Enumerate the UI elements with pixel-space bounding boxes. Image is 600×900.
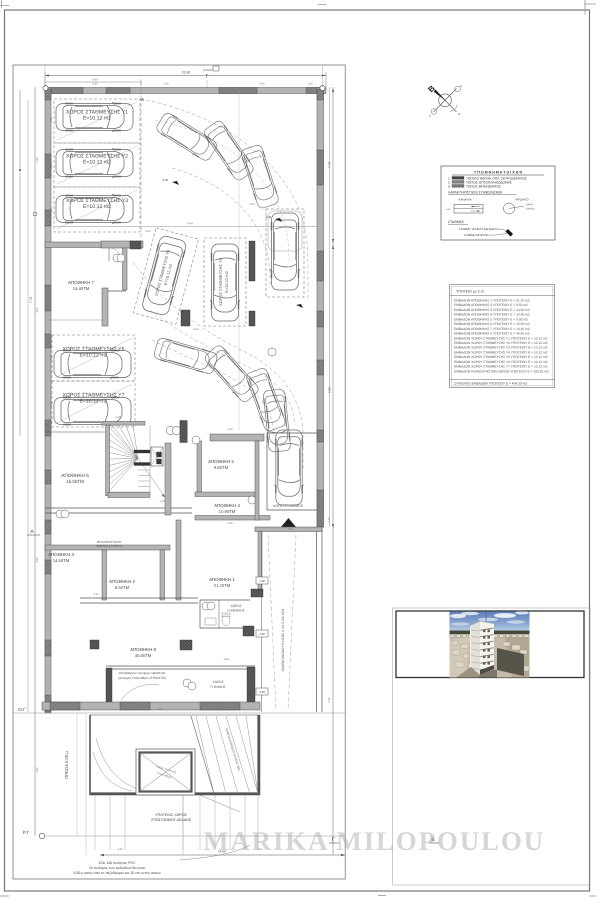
svg-text:2.98: 2.98 — [259, 632, 265, 636]
svg-text:ΕΜΒΑΔΟΝ ΑΠΟΘΗΚΗΣ 6 ΥΠΟΓΕΙΟΥ Ε: ΕΜΒΑΔΟΝ ΑΠΟΘΗΚΗΣ 6 ΥΠΟΓΕΙΟΥ Ε = 15.50 m2 — [454, 322, 530, 326]
svg-text:ΣΤΑΘΜΗ ΤΕΛΙΚΟΥ ΔΑΠΕΔΟΥ: ΣΤΑΘΜΗ ΤΕΛΙΚΟΥ ΔΑΠΕΔΟΥ — [459, 227, 497, 231]
svg-text:1.20: 1.20 — [159, 500, 165, 503]
svg-text:4.44: 4.44 — [187, 222, 193, 226]
svg-text:4.40: 4.40 — [117, 848, 123, 851]
svg-text:1.90: 1.90 — [307, 83, 313, 86]
svg-text:15.50ΤΜ: 15.50ΤΜ — [66, 479, 84, 484]
svg-text:Οι σωληνες των καλωδιων θα ειν: Οι σωληνες των καλωδιων θα ειναι — [89, 866, 145, 870]
svg-text:ΠΡΑΣΙΑ 6.00 μ: ΠΡΑΣΙΑ 6.00 μ — [64, 751, 69, 779]
svg-text:2.20: 2.20 — [193, 328, 199, 331]
svg-text:ΑΠΟΘΗΚΗ 8: ΑΠΟΘΗΚΗ 8 — [130, 647, 156, 652]
svg-text:ΕΜΒΑΔΟΝ ΧΩΡΟΥ ΣΤΑΘΜΕΥΣΗΣ Υ4 ΥΠ: ΕΜΒΑΔΟΝ ΧΩΡΟΥ ΣΤΑΘΜΕΥΣΗΣ Υ4 ΥΠΟΓΕΙΟΥ Ε =… — [454, 350, 548, 354]
svg-text:2.60: 2.60 — [163, 83, 169, 86]
svg-text:4.40: 4.40 — [50, 163, 53, 169]
svg-text:ΚΛΕΙΣΤΟ GARAGE: ΚΛΕΙΣΤΟ GARAGE — [273, 504, 304, 508]
svg-text:ΕΜΒΑΔΟΝ ΧΩΡΟΥ ΣΤΑΘΜΕΥΣΗΣ Υ2 ΥΠ: ΕΜΒΑΔΟΝ ΧΩΡΟΥ ΣΤΑΘΜΕΥΣΗΣ Υ2 ΥΠΟΓΕΙΟΥ Ε =… — [454, 341, 548, 345]
svg-text:ΕΜΒΑΔΟΝ ΧΩΡΟΥ ΣΤΑΘΜΕΥΣΗΣ Υ5 ΥΠ: ΕΜΒΑΔΟΝ ΧΩΡΟΥ ΣΤΑΘΜΕΥΣΗΣ Υ5 ΥΠΟΓΕΙΟΥ Ε =… — [454, 355, 548, 359]
svg-text:1.10: 1.10 — [328, 517, 331, 523]
svg-text:12Φ 140 σωληνες PVC: 12Φ 140 σωληνες PVC — [98, 861, 136, 865]
svg-text:Ε=10.12 m2: Ε=10.12 m2 — [83, 204, 111, 210]
svg-text:ΡΑΜΠΑ ΑΝΟΔΟΥ ΚΛΙΣΗΣ 2.4/1.5.30: ΡΑΜΠΑ ΑΝΟΔΟΥ ΚΛΙΣΗΣ 2.4/1.5.30=16% — [281, 609, 285, 672]
svg-text:ΕΜΒΑΔΟΝ ΑΠΟΘΗΚΗΣ 5 ΥΠΟΓΕΙΟΥ Ε: ΕΜΒΑΔΟΝ ΑΠΟΘΗΚΗΣ 5 ΥΠΟΓΕΙΟΥ Ε = 9.80 m2 — [454, 317, 528, 321]
svg-text:Η ΒΙΕΝΝΗΣ: Η ΒΙΕΝΝΗΣ — [227, 609, 244, 613]
svg-text:ΑΠΟΘΗΚΗ 2: ΑΠΟΘΗΚΗ 2 — [109, 579, 135, 584]
svg-text:4.90: 4.90 — [36, 557, 39, 563]
svg-text:2.30: 2.30 — [36, 157, 39, 163]
svg-text:Α: Α — [141, 97, 144, 102]
svg-text:5.00: 5.00 — [287, 528, 293, 531]
svg-text:ΕΜΒΑΔΟΝ ΑΠΟΘΗΚΗΣ 8 ΥΠΟΓΕΙΟΥ Ε: ΕΜΒΑΔΟΝ ΑΠΟΘΗΚΗΣ 8 ΥΠΟΓΕΙΟΥ Ε = 45.80 m2 — [454, 332, 530, 336]
svg-text:1.98: 1.98 — [259, 579, 265, 583]
svg-text:ΑΝΕΛΚΥΣΤΗΡΑ Θ: ΑΝΕΛΚΥΣΤΗΡΑ Θ — [96, 544, 122, 548]
svg-text:9.80ΤΜ: 9.80ΤΜ — [214, 465, 229, 470]
svg-text:10.90ΤΜ: 10.90ΤΜ — [219, 509, 236, 514]
svg-text:Γ: Γ — [206, 74, 209, 80]
svg-text:1.98: 1.98 — [223, 658, 229, 661]
svg-text:ΥΠΟΣΤΑΘΜΟΥ ΔΕΔΔΗΕ: ΥΠΟΣΤΑΘΜΟΥ ΔΕΔΔΗΕ — [151, 818, 192, 822]
svg-text:(ανοιγμα Υποσταθμου 0.80x4.50): (ανοιγμα Υποσταθμου 0.80x4.50) — [118, 676, 165, 680]
svg-text:Υ Π Ο Μ Ν Η Μ Α Τ Ο Ι Χ Ω Ν: Υ Π Ο Μ Ν Η Μ Α Τ Ο Ι Χ Ω Ν — [474, 171, 523, 175]
svg-text:ΦΡΕΑΤΙΟ: ΦΡΕΑΤΙΟ — [515, 198, 529, 202]
svg-text:4.40: 4.40 — [50, 207, 53, 213]
svg-text:ΥΠΟΓΕΙΟΣ ΧΩΡΟΣ: ΥΠΟΓΕΙΟΣ ΧΩΡΟΣ — [155, 813, 187, 817]
svg-text:3.30: 3.30 — [227, 428, 233, 431]
svg-text:45.80ΤΜ: 45.80ΤΜ — [135, 653, 152, 658]
svg-text:ΕΜΒΑΔΟΝ ΧΩΡΟΥ ΣΤΑΘΜΕΥΣΗΣ Υ3 ΥΠ: ΕΜΒΑΔΟΝ ΧΩΡΟΥ ΣΤΑΘΜΕΥΣΗΣ Υ3 ΥΠΟΓΕΙΟΥ Ε =… — [454, 346, 548, 350]
svg-text:4.40: 4.40 — [50, 355, 53, 361]
svg-text:8.50ΤΜ: 8.50ΤΜ — [115, 585, 130, 590]
svg-text:21.20ΤΜ: 21.20ΤΜ — [214, 583, 231, 588]
svg-text:Ε=10.12 m2: Ε=10.12 m2 — [83, 116, 111, 122]
svg-text:Α: Α — [460, 84, 462, 88]
svg-text:ΕΜΒΑΔΟΝ ΑΠΟΘΗΚΗΣ 4 ΥΠΟΓΕΙΟΥ Ε: ΕΜΒΑΔΟΝ ΑΠΟΘΗΚΗΣ 4 ΥΠΟΓΕΙΟΥ Ε = 10.90 m2 — [454, 313, 530, 317]
svg-text:MARIKA MILOPOULOU: MARIKA MILOPOULOU — [203, 826, 545, 856]
svg-text:ΤΟΙΧΟΣ ΜΠΑΖΩΜΑΤΟΣ: ΤΟΙΧΟΣ ΜΠΑΖΩΜΑΤΟΣ — [466, 185, 501, 189]
svg-text:ΑΠΟΘΗΚΗ 1: ΑΠΟΘΗΚΗ 1 — [209, 577, 235, 582]
svg-text:ΧΩΡΟΣ ΣΤΑΘΜΕΥΣΗΣ Υ5: ΧΩΡΟΣ ΣΤΑΘΜΕΥΣΗΣ Υ5 — [218, 257, 223, 306]
svg-text:ΥΠΟΓΕΙΟ με Σ.Ο.: ΥΠΟΓΕΙΟ με Σ.Ο. — [456, 290, 485, 294]
svg-text:ΣΥΝΟΛΙΚΟ ΕΜΒΑΔΟΝ ΥΠΟΓΕΙΟΥ Ε =: ΣΥΝΟΛΙΚΟ ΕΜΒΑΔΟΝ ΥΠΟΓΕΙΟΥ Ε = 404.35 m2 — [454, 382, 527, 386]
svg-text:Ε=10.12 m2: Ε=10.12 m2 — [83, 160, 111, 166]
svg-text:ΑΠΟΘΗΚΗ 3: ΑΠΟΘΗΚΗ 3 — [48, 552, 74, 557]
svg-text:7.76: 7.76 — [29, 297, 33, 303]
svg-text:5.45: 5.45 — [328, 697, 331, 703]
svg-text:3.: 3. — [448, 185, 451, 189]
svg-text:5.90: 5.90 — [259, 83, 265, 86]
svg-text:ΕΜΒΑΔΟΝ ΧΩΡΟΥ ΣΤΑΘΜΕΥΣΗΣ Υ7 ΥΠ: ΕΜΒΑΔΟΝ ΧΩΡΟΥ ΣΤΑΘΜΕΥΣΗΣ Υ7 ΥΠΟΓΕΙΟΥ Ε =… — [454, 365, 548, 369]
svg-text:4.90: 4.90 — [92, 79, 98, 82]
svg-text:14.50ΤΜ: 14.50ΤΜ — [53, 558, 70, 563]
svg-text:-0.40: -0.40 — [162, 178, 169, 182]
svg-text:4.40: 4.40 — [50, 401, 53, 407]
svg-text:ΣΤΑΘΜΗ ΜΠΕΤΟΝ: ΣΤΑΘΜΗ ΜΠΕΤΟΝ — [464, 233, 488, 237]
svg-text:3.95: 3.95 — [36, 767, 39, 773]
svg-text:14.40ΤΜ: 14.40ΤΜ — [73, 286, 90, 291]
svg-text:ΚΑΝΑΛΙΑ: ΚΑΝΑΛΙΑ — [458, 198, 471, 202]
svg-text:ΕΜΒΑΔΟΝ ΑΠΟΘΗΚΗΣ 3 ΥΠΟΓΕΙΟΥ Ε: ΕΜΒΑΔΟΝ ΑΠΟΘΗΚΗΣ 3 ΥΠΟΓΕΙΟΥ Ε = 14.50 m2 — [454, 308, 530, 312]
svg-text:Π ΙΕΝΝΗΣ: Π ΙΕΝΝΗΣ — [210, 685, 225, 689]
svg-text:ΕΜΒΑΔΟΝ ΧΩΡΟΥ ΣΤΑΘΜΕΥΣΗΣ Υ6 ΥΠ: ΕΜΒΑΔΟΝ ΧΩΡΟΥ ΣΤΑΘΜΕΥΣΗΣ Υ6 ΥΠΟΓΕΙΟΥ Ε =… — [454, 360, 548, 364]
svg-text:3.15: 3.15 — [93, 593, 99, 596]
svg-text:ΧΑΡΑΚΤΗΡΙΣΤΙΚΟΙ ΣΥΜΒΟΛΙΣΜΟΙ: ΧΑΡΑΚΤΗΡΙΣΤΙΚΟΙ ΣΥΜΒΟΛΙΣΜΟΙ — [448, 191, 502, 195]
svg-text:ΧΩΡΟΣ: ΧΩΡΟΣ — [212, 680, 223, 684]
svg-text:καθοδος: καθοδος — [526, 208, 536, 211]
svg-text:2.48: 2.48 — [115, 416, 121, 419]
svg-text:3.98: 3.98 — [259, 690, 265, 694]
svg-text:31.80: 31.80 — [182, 71, 191, 75]
svg-text:Ν: Ν — [458, 112, 460, 116]
svg-text:ΧΩΡΟΣ: ΧΩΡΟΣ — [230, 604, 241, 608]
svg-text:5.00 μ κατω απο το πεζοδρομιο: 5.00 μ κατω απο το πεζοδρομιο και 10 cm … — [73, 871, 160, 875]
svg-text:-0.40: -0.40 — [265, 215, 272, 219]
svg-text:Ρ.Γ: Ρ.Γ — [23, 830, 30, 835]
svg-text:ΣΤΑΘΜΕΣ: ΣΤΑΘΜΕΣ — [448, 220, 464, 224]
svg-text:ΑΠΟΘΗΚΗ 7: ΑΠΟΘΗΚΗ 7 — [68, 280, 94, 285]
svg-text:4.40: 4.40 — [92, 83, 98, 86]
svg-text:2.20: 2.20 — [145, 230, 151, 233]
svg-text:ΕΜΒΑΔΟΝ ΑΠΟΘΗΚΗΣ 2 ΥΠΟΓΕΙΟΥ Ε: ΕΜΒΑΔΟΝ ΑΠΟΘΗΚΗΣ 2 ΥΠΟΓΕΙΟΥ Ε = 8.50 m2 — [454, 303, 528, 307]
svg-text:3.05: 3.05 — [36, 307, 39, 313]
svg-text:ΑΠΟΘΗΚΗ 4: ΑΠΟΘΗΚΗ 4 — [214, 503, 240, 508]
svg-text:ΕΜΒΑΔΟΝ ΧΩΡΟΥ ΣΤΑΘΜΕΥΣΗΣ Υ1 ΥΠ: ΕΜΒΑΔΟΝ ΧΩΡΟΥ ΣΤΑΘΜΕΥΣΗΣ Υ1 ΥΠΟΓΕΙΟΥ Ε =… — [454, 336, 548, 340]
svg-text:ΑΠΟΘΗΚΗ 6: ΑΠΟΘΗΚΗ 6 — [61, 473, 89, 478]
svg-text:καν.: καν. — [447, 208, 452, 211]
svg-text:ΑΠΟΘΗΚΗ 5: ΑΠΟΘΗΚΗ 5 — [208, 459, 234, 464]
svg-text:ΕΜΒΑΔΟΝ ΑΠΟΘΗΚΗΣ 7 ΥΠΟΓΕΙΟΥ Ε: ΕΜΒΑΔΟΝ ΑΠΟΘΗΚΗΣ 7 ΥΠΟΓΕΙΟΥ Ε = 14.40 m2 — [454, 327, 530, 331]
svg-text:2.96: 2.96 — [227, 522, 233, 525]
svg-text:4.40: 4.40 — [50, 117, 53, 123]
svg-text:2.50: 2.50 — [249, 203, 255, 206]
svg-text:Δ: Δ — [429, 114, 431, 118]
svg-text:Ε=10.12 m2: Ε=10.12 m2 — [224, 270, 229, 292]
svg-text:7.00: 7.00 — [157, 708, 163, 711]
svg-text:σχαρα: σχαρα — [526, 203, 533, 206]
svg-text:ΕΜΒΑΔΟΝ ΚΟΙΝΟΧΡΗΣΤΩΝ ΧΩΡΩΝ ΥΠΟ: ΕΜΒΑΔΟΝ ΚΟΙΝΟΧΡΗΣΤΩΝ ΧΩΡΩΝ ΥΠΟΓΕΙΟΥ Ε = … — [454, 369, 549, 373]
svg-text:κατεβασμενο ανυψωμ παραθυρο: κατεβασμενο ανυψωμ παραθυρο — [119, 671, 166, 675]
svg-text:ΕΜΒΑΔΟΝ ΑΠΟΘΗΚΗΣ 1 ΥΠΟΓΕΙΟΥ Ε: ΕΜΒΑΔΟΝ ΑΠΟΘΗΚΗΣ 1 ΥΠΟΓΕΙΟΥ Ε = 21.20 m2 — [454, 299, 530, 303]
svg-text:Ο.Γ: Ο.Γ — [18, 707, 26, 712]
